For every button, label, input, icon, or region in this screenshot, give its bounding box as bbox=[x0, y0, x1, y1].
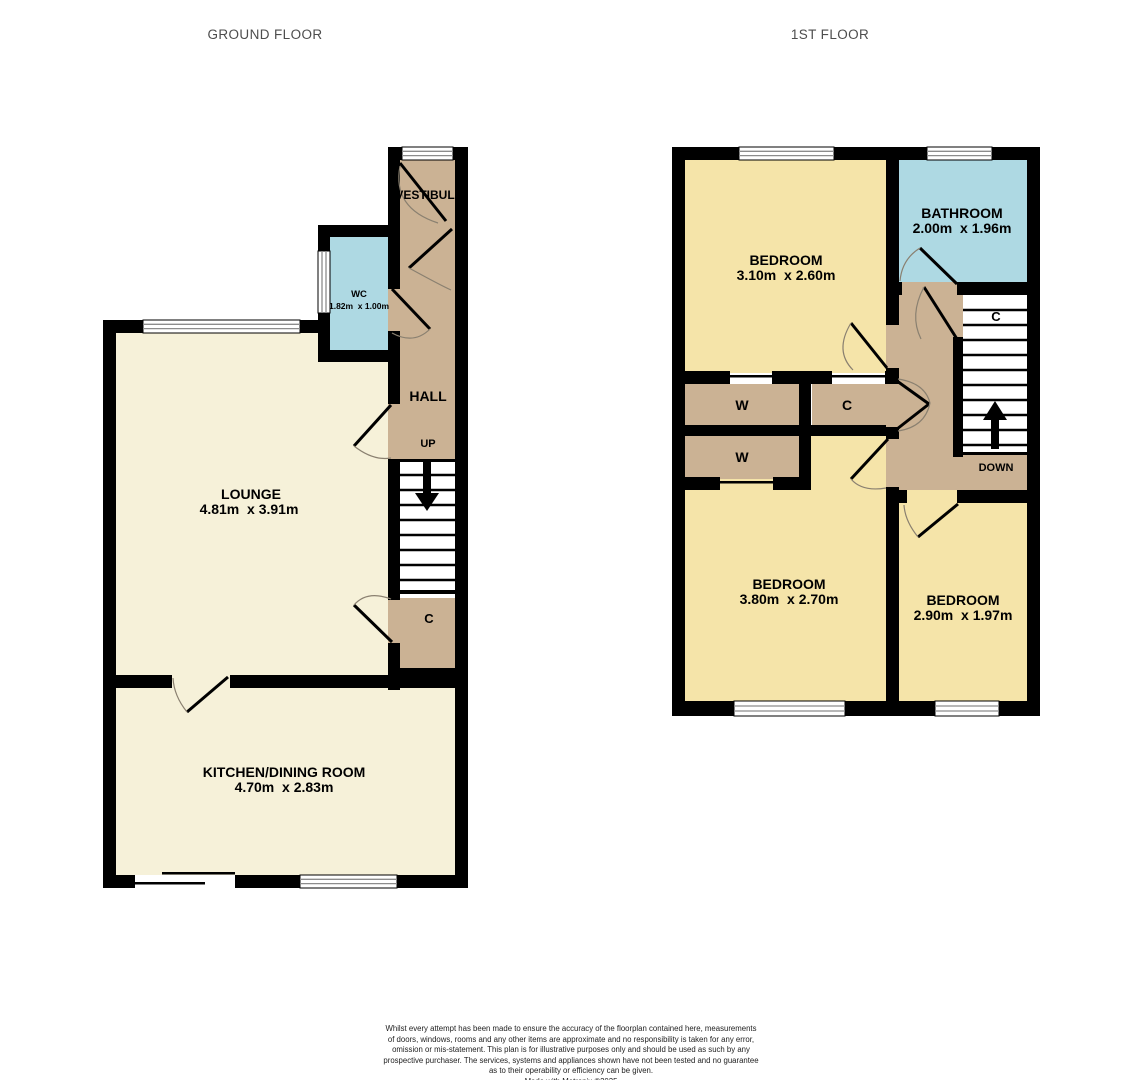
ff-bedroom-side-window bbox=[935, 701, 999, 716]
gf-hall-label: HALL bbox=[409, 388, 447, 404]
ff-cupboard-label: C bbox=[842, 397, 852, 413]
gf-wc-dims: 1.82m x 1.00m bbox=[329, 301, 389, 311]
disclaimer: Whilst every attempt has been made to en… bbox=[371, 1024, 771, 1080]
gf-lounge-window bbox=[143, 320, 300, 333]
ff-bedroom-back-label: BEDROOM bbox=[752, 576, 825, 592]
ff-bedroom-front-label: BEDROOM bbox=[749, 252, 822, 268]
ff-bathroom-label: BATHROOM bbox=[921, 205, 1002, 221]
ground-floor-title: GROUND FLOOR bbox=[155, 27, 375, 42]
gf-lounge-dims: 4.81m x 3.91m bbox=[200, 501, 299, 517]
gf-vestibule-label: VESTIBULE bbox=[395, 188, 462, 202]
gf-kitchen-window bbox=[300, 875, 397, 888]
gf-stairs bbox=[400, 459, 455, 594]
ff-bedroom-side-label: BEDROOM bbox=[926, 592, 999, 608]
disclaimer-line: as to their operability or efficiency ca… bbox=[371, 1066, 771, 1077]
disclaimer-line: omission or mis-statement. This plan is … bbox=[371, 1045, 771, 1056]
disclaimer-line: prospective purchaser. The services, sys… bbox=[371, 1056, 771, 1067]
ff-bathroom-dims: 2.00m x 1.96m bbox=[913, 220, 1012, 236]
gf-kitchen-label: KITCHEN/DINING ROOM bbox=[203, 764, 366, 780]
disclaimer-line: of doors, windows, rooms and any other i… bbox=[371, 1035, 771, 1046]
gf-wc-label: WC bbox=[351, 289, 367, 300]
disclaimer-line: Whilst every attempt has been made to en… bbox=[371, 1024, 771, 1035]
gf-up-label: UP bbox=[420, 438, 435, 450]
ff-stairs-cupboard-label: C bbox=[991, 309, 1001, 324]
gf-lounge-label: LOUNGE bbox=[221, 486, 281, 502]
ff-bedroom-front-window bbox=[739, 147, 834, 160]
floorplan-canvas: VESTIBULE WC 1.82m x 1.00m HALL UP LOUNG… bbox=[0, 0, 1142, 1080]
floorplan-page: GROUND FLOOR 1ST FLOOR bbox=[0, 0, 1142, 1080]
ff-down-label: DOWN bbox=[979, 462, 1014, 474]
ff-bedroom-back-window bbox=[734, 701, 845, 716]
gf-vestibule-window bbox=[402, 147, 453, 160]
ff-bedroom-back-dims: 3.80m x 2.70m bbox=[740, 591, 839, 607]
ff-bedroom-front-dims: 3.10m x 2.60m bbox=[737, 267, 836, 283]
ff-wardrobe1-label: W bbox=[735, 397, 749, 413]
gf-cupboard-label: C bbox=[424, 611, 434, 626]
ff-bedroom-side-dims: 2.90m x 1.97m bbox=[914, 607, 1013, 623]
first-floor-plan: BEDROOM 3.10m x 2.60m BATHROOM 2.00m x 1… bbox=[672, 147, 1040, 716]
ff-bathroom-window bbox=[927, 147, 992, 160]
ground-floor-plan: VESTIBULE WC 1.82m x 1.00m HALL UP LOUNG… bbox=[103, 147, 468, 888]
gf-kitchen-dims: 4.70m x 2.83m bbox=[235, 779, 334, 795]
first-floor-title: 1ST FLOOR bbox=[720, 27, 940, 42]
ff-wardrobe2-label: W bbox=[735, 449, 749, 465]
